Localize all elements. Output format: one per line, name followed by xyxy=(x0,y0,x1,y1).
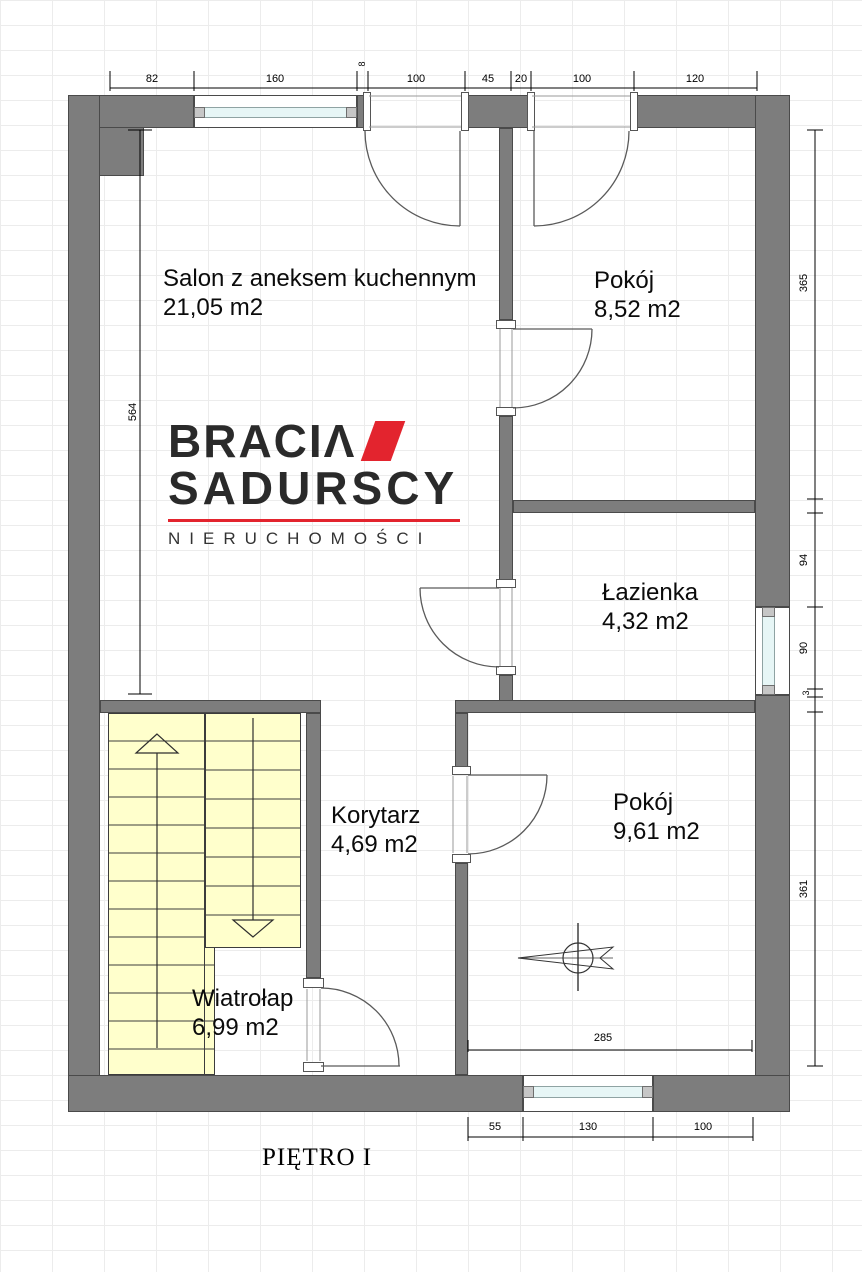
wall-mid-left xyxy=(100,700,321,713)
dimension-label: 130 xyxy=(579,1121,597,1133)
wall-bottom-1 xyxy=(68,1075,523,1112)
door-jamb xyxy=(452,854,471,863)
door-jamb xyxy=(452,766,471,775)
door-jamb xyxy=(461,92,469,131)
door-jamb xyxy=(527,92,535,131)
room-name: Łazienka xyxy=(602,578,698,607)
wall-left-pilaster xyxy=(99,127,144,176)
window-top-cap-left xyxy=(194,107,205,118)
window-right-cap-bottom xyxy=(762,685,775,695)
dimension-label: 82 xyxy=(146,73,158,85)
door-jamb xyxy=(630,92,638,131)
dimension-label: 3 xyxy=(801,690,811,695)
dimension-label: 45 xyxy=(482,73,494,85)
compass-icon xyxy=(518,923,613,991)
dimension-label: 160 xyxy=(266,73,284,85)
agency-logo: BRACIΛ SADURSCY NIERUCHOMOŚCI xyxy=(168,418,460,549)
wall-center-1 xyxy=(499,128,513,320)
room-label-korytarz: Korytarz 4,69 m2 xyxy=(331,801,420,860)
dimension-label: 285 xyxy=(594,1032,612,1044)
room-area: 9,61 m2 xyxy=(613,817,700,846)
room-area: 21,05 m2 xyxy=(163,293,477,322)
room-label-pokoj-gorny: Pokój 8,52 m2 xyxy=(594,266,681,325)
dimension-label: 8 xyxy=(357,61,367,66)
door-jamb xyxy=(363,92,371,131)
room-area: 4,69 m2 xyxy=(331,830,420,859)
dimension-label: 55 xyxy=(489,1121,501,1133)
dimension-label: 94 xyxy=(798,554,810,566)
room-area: 8,52 m2 xyxy=(594,295,681,324)
room-name: Pokój xyxy=(594,266,681,295)
wall-center-2 xyxy=(499,416,513,582)
dimension-label: 100 xyxy=(407,73,425,85)
opening-edges xyxy=(307,96,630,1061)
room-area: 4,32 m2 xyxy=(602,607,698,636)
window-top-cap-right xyxy=(346,107,357,118)
room-name: Salon z aneksem kuchennym xyxy=(163,264,477,293)
room-label-wiatrolap: Wiatrołap 6,99 m2 xyxy=(192,984,293,1043)
window-bottom-cap-left xyxy=(523,1086,534,1098)
dimension-label: 365 xyxy=(798,274,810,292)
wall-bottom-2 xyxy=(653,1075,790,1112)
window-right-glazing xyxy=(762,616,775,686)
stairs-left-flight xyxy=(108,713,205,1075)
logo-text-sadurscy: SADURSCY xyxy=(168,465,460,511)
wall-right-lower xyxy=(755,695,790,1112)
door-jamb xyxy=(303,978,324,988)
window-right-cap-top xyxy=(762,607,775,617)
wall-stairwell xyxy=(306,713,321,978)
wall-bathroom-top xyxy=(513,500,755,513)
door-jamb xyxy=(496,320,516,329)
logo-text-nieruchomosci: NIERUCHOMOŚCI xyxy=(168,529,460,549)
wall-left xyxy=(68,95,100,1112)
room-label-salon: Salon z aneksem kuchennym 21,05 m2 xyxy=(163,264,477,323)
wall-room-lower-2 xyxy=(455,863,468,1075)
room-label-pokoj-dolny: Pokój 9,61 m2 xyxy=(613,788,700,847)
dimension-label: 90 xyxy=(798,642,810,654)
dimension-label: 20 xyxy=(515,73,527,85)
door-jamb xyxy=(496,579,516,588)
floor-plan: 82 160 8 100 45 20 100 120 564 365 94 90… xyxy=(0,0,862,1272)
wall-room-lower-1 xyxy=(455,713,468,767)
room-label-lazienka: Łazienka 4,32 m2 xyxy=(602,578,698,637)
room-name: Pokój xyxy=(613,788,700,817)
door-jamb xyxy=(496,666,516,675)
dimension-label: 100 xyxy=(694,1121,712,1133)
window-bottom-glazing xyxy=(533,1086,643,1098)
dimension-label: 100 xyxy=(573,73,591,85)
floor-title: PIĘTRO I xyxy=(262,1144,372,1172)
wall-right-upper xyxy=(755,95,790,607)
dimension-label: 120 xyxy=(686,73,704,85)
room-area: 6,99 m2 xyxy=(192,1013,293,1042)
room-name: Wiatrołap xyxy=(192,984,293,1013)
room-name: Korytarz xyxy=(331,801,420,830)
dimension-label: 361 xyxy=(798,880,810,898)
logo-row-1: BRACIΛ xyxy=(168,418,460,464)
logo-red-parallelogram-icon xyxy=(361,421,406,461)
wall-top-3 xyxy=(465,95,531,128)
wall-mid-right xyxy=(455,700,755,713)
door-jamb xyxy=(496,407,516,416)
logo-red-underline xyxy=(168,519,460,522)
stairs-right-flight xyxy=(205,713,301,948)
window-bottom-cap-right xyxy=(642,1086,653,1098)
door-jamb xyxy=(303,1062,324,1072)
window-top-glazing xyxy=(204,107,347,118)
logo-text-bracia: BRACIΛ xyxy=(168,418,356,464)
dimension-label: 564 xyxy=(127,403,139,421)
